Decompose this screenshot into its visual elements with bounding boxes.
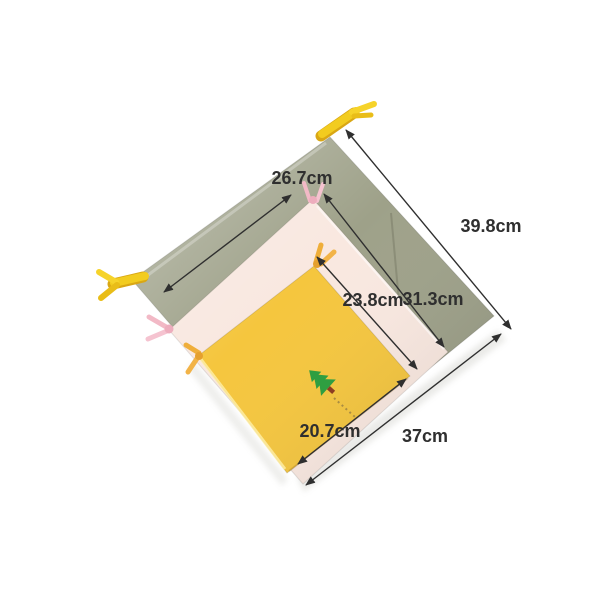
dim-label-medium-width: 26.7cm [271, 168, 332, 188]
drawstring-medium-left-knot [165, 325, 174, 334]
drawstring-large-top-tail2 [354, 115, 371, 116]
drawstring-large-top-tail [352, 104, 374, 112]
dim-label-small-width: 20.7cm [299, 421, 360, 441]
dim-label-large-width: 37cm [402, 426, 448, 446]
drawstring-large-left-tail [99, 272, 116, 282]
drawstring-small-top-knot [313, 260, 321, 268]
dim-label-large-length: 39.8cm [460, 216, 521, 236]
drawstring-medium-left-strand2 [148, 331, 167, 339]
dim-label-medium-length: 31.3cm [402, 289, 463, 309]
drawstring-medium-top-knot [309, 196, 317, 204]
dim-label-small-length: 23.8cm [342, 290, 403, 310]
bags-scene: 26.7cm 39.8cm 31.3cm 23.8cm 20.7cm 37cm [0, 0, 600, 600]
product-dimension-image: 26.7cm 39.8cm 31.3cm 23.8cm 20.7cm 37cm [0, 0, 600, 600]
drawstring-small-left-knot [195, 352, 203, 360]
